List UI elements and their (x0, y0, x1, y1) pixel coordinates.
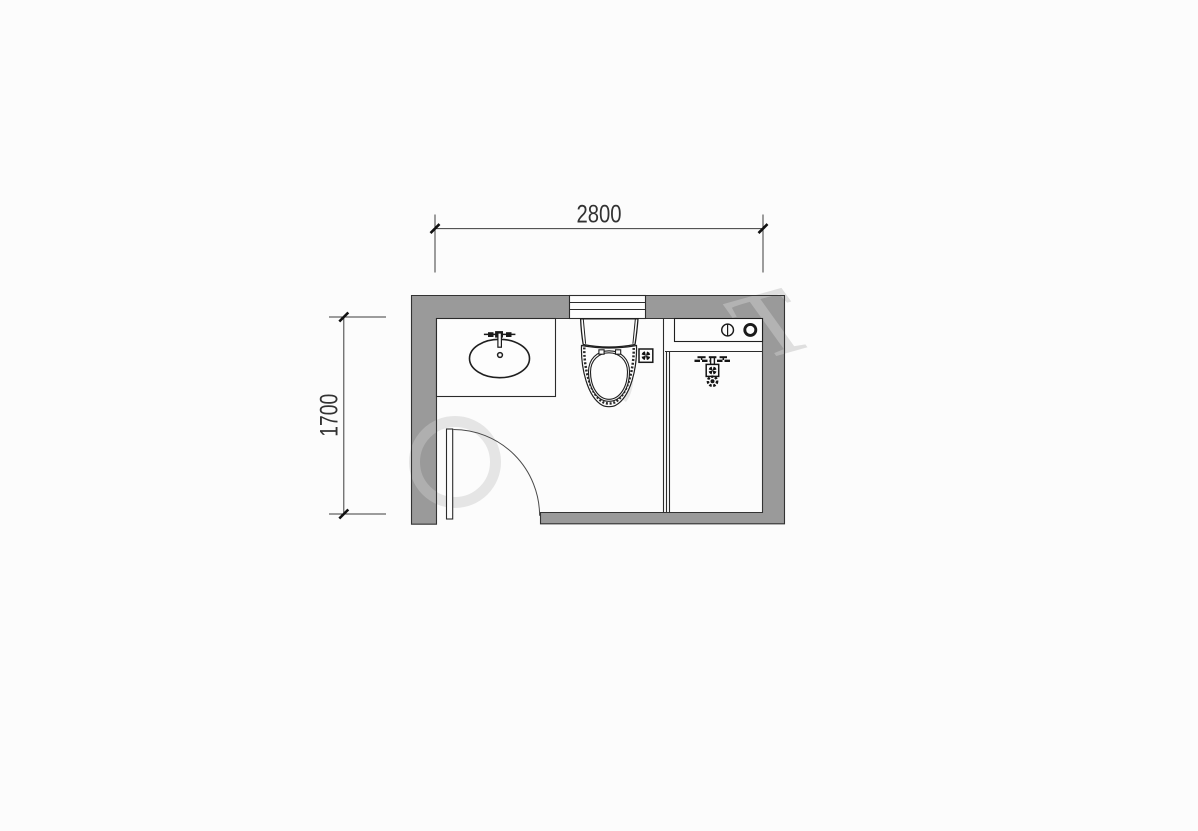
svg-text:1700: 1700 (316, 394, 344, 437)
svg-text:2800: 2800 (577, 201, 622, 229)
